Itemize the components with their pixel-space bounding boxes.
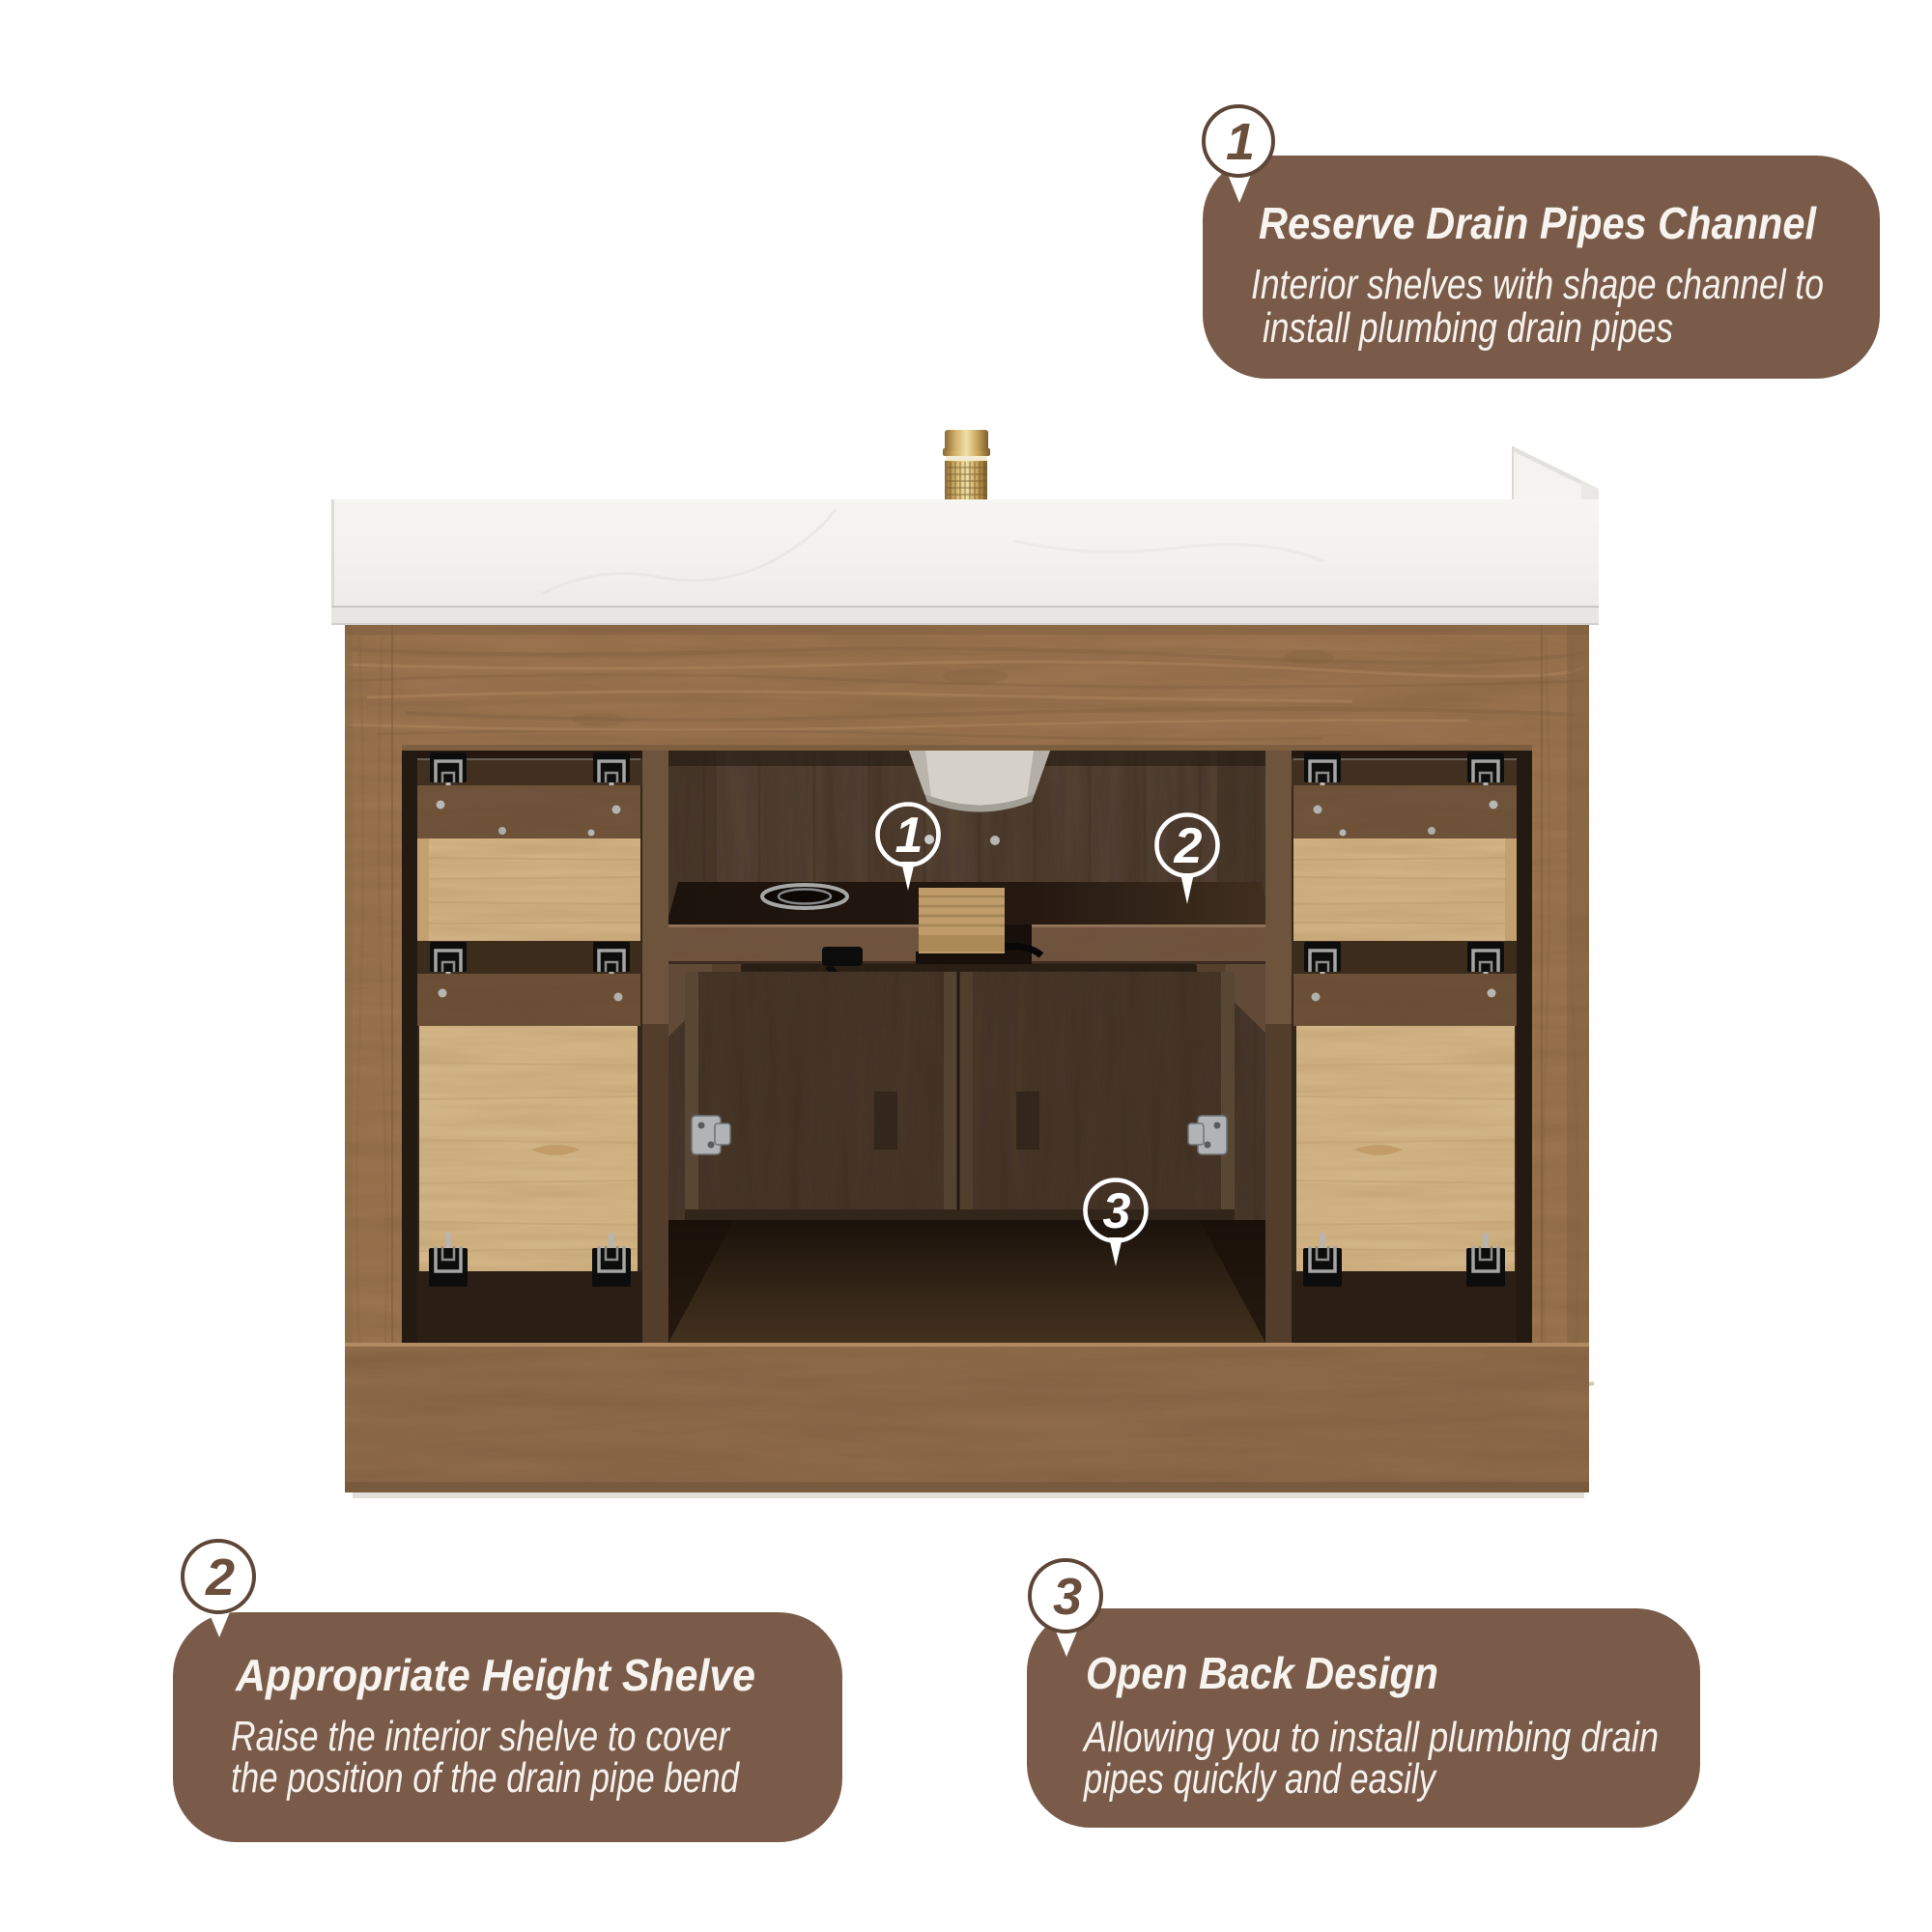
svg-text:install plumbing drain pipes: install plumbing drain pipes [1263, 304, 1673, 352]
svg-text:3: 3 [1053, 1568, 1082, 1626]
svg-text:Allowing you to install plumbi: Allowing you to install plumbing drain [1082, 1714, 1659, 1761]
svg-text:1: 1 [895, 808, 923, 864]
svg-text:1: 1 [1226, 113, 1255, 171]
svg-text:Interior shelves with shape ch: Interior shelves with shape channel to [1251, 261, 1824, 308]
svg-text:pipes quickly and easily: pipes quickly and easily [1082, 1755, 1437, 1803]
svg-text:2: 2 [205, 1548, 235, 1606]
svg-text:the position of the drain pipe: the position of the drain pipe bend [231, 1754, 740, 1802]
svg-text:3: 3 [1103, 1183, 1131, 1239]
svg-text:Appropriate Height Shelve: Appropriate Height Shelve [235, 1650, 755, 1700]
svg-text:Reserve Drain Pipes Channel: Reserve Drain Pipes Channel [1259, 198, 1817, 248]
svg-text:Open Back Design: Open Back Design [1086, 1648, 1438, 1698]
svg-text:Raise the interior shelve to: Raise the interior shelve to cover [231, 1713, 731, 1760]
svg-text:2: 2 [1174, 818, 1203, 874]
